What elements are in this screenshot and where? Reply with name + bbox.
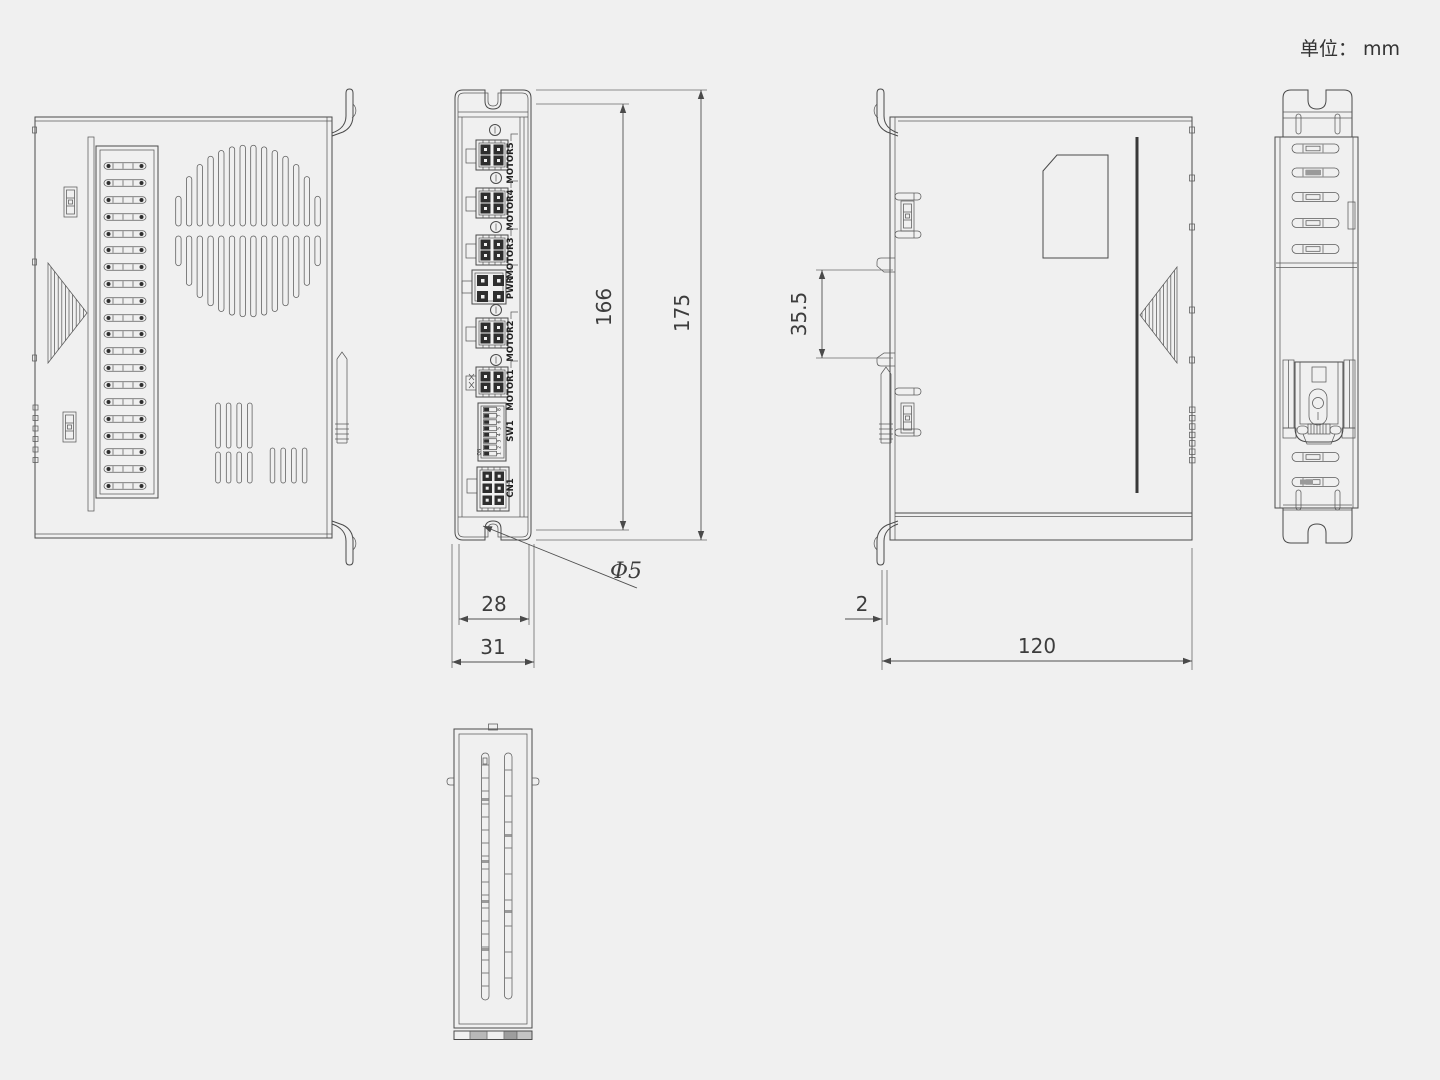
dip-number: 7 [497,414,503,417]
dip-number: 6 [497,421,503,424]
unit-note: 单位： mm [1300,38,1400,60]
dip-on-label: ON [477,449,483,456]
dim-phi5-text: Φ5 [610,559,642,584]
background [0,0,1440,1080]
dim-166-text: 166 [592,288,616,326]
label-motor5: MOTOR5 [506,142,516,183]
dim-175-text: 175 [670,294,694,332]
label-motor2: MOTOR2 [506,320,516,361]
dip-number: 5 [497,427,503,430]
label-pwr: PWR [506,276,516,299]
dip-number: 4 [497,433,503,436]
dim-31-text: 31 [480,635,505,659]
dip-number: 8 [497,408,503,411]
label-sw1: SW1 [506,420,516,441]
dim-2-text: 2 [856,592,869,616]
dim-120-text: 120 [1018,634,1056,658]
label-motor3: MOTOR3 [506,237,516,278]
dip-number: 1 [497,452,503,455]
dim-28-text: 28 [481,592,506,616]
dip-number: 2 [497,446,503,449]
dim-35-5-text: 35.5 [787,292,811,337]
dip-number: 3 [497,439,503,442]
label-motor1: MOTOR1 [506,369,516,410]
label-cn1: CN1 [506,478,516,497]
label-motor4: MOTOR4 [506,189,516,230]
technical-drawing: 8 7 6 5 4 3 2 1 ON MOTOR5 MOTOR4 [0,0,1440,1080]
drawing-page: 8 7 6 5 4 3 2 1 ON MOTOR5 MOTOR4 [0,0,1440,1080]
